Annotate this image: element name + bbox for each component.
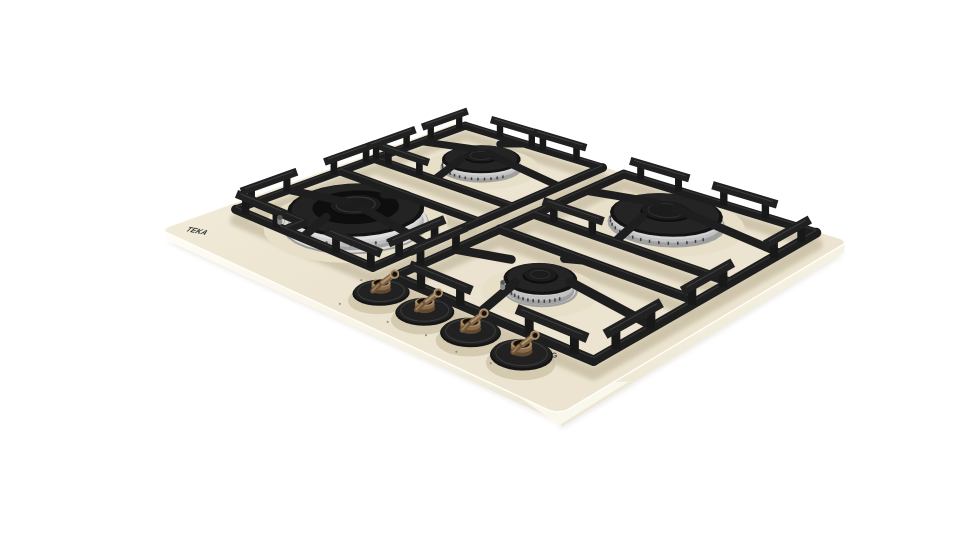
svg-text:G: G [552, 353, 558, 360]
